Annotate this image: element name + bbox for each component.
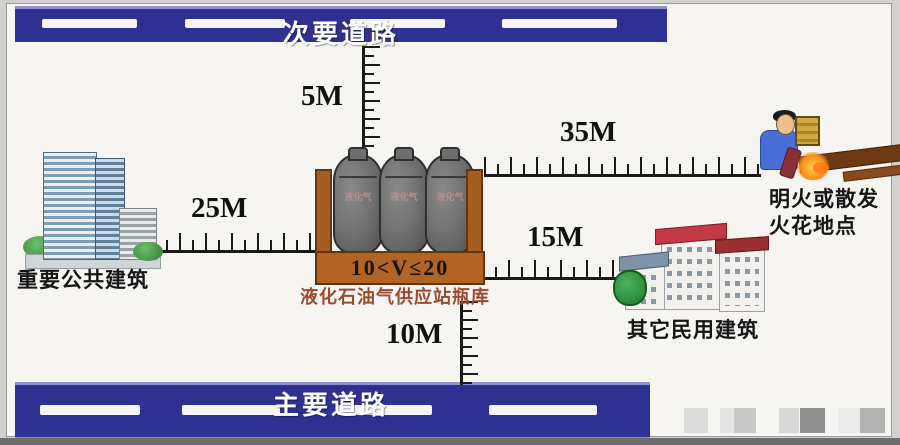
container-left-wall	[315, 169, 332, 257]
ruler-35m	[484, 154, 761, 177]
distance-5m: 5M	[301, 80, 343, 113]
ruler-5m	[362, 46, 383, 152]
volume-range-bar: 10<V≤20	[315, 251, 485, 285]
lane-marking	[489, 405, 597, 415]
flame-point-label-line1: 明火或散发	[769, 186, 879, 213]
ruler-25m	[153, 230, 317, 253]
cylinder-label: 液化气	[335, 190, 381, 203]
watermark-block	[779, 408, 799, 433]
gas-cylinder: 液化气	[333, 154, 383, 255]
diagram-canvas: 次要道路 主要道路 5M 25M 35M 15M 10M 液化气 液化气 液化气	[6, 3, 892, 437]
distance-25m: 25M	[191, 192, 247, 225]
tower-front	[43, 152, 97, 260]
lane-marking	[40, 405, 140, 415]
house	[661, 238, 721, 310]
flame-point-label-line2: 火花地点	[769, 213, 879, 240]
welder-head	[776, 114, 795, 135]
secondary-road: 次要道路	[15, 6, 667, 42]
gas-cylinder: 液化气	[379, 154, 429, 255]
windows	[725, 257, 759, 306]
lane-marking	[185, 19, 285, 28]
civil-buildings-illustration	[619, 224, 774, 314]
watermark-block	[800, 408, 825, 433]
bush	[133, 242, 163, 261]
public-building-illustration	[29, 150, 161, 268]
watermark-block	[720, 408, 734, 433]
lane-marking	[42, 19, 137, 28]
welder-illustration	[747, 110, 900, 194]
watermark-block	[684, 408, 708, 433]
bottom-border	[0, 438, 900, 445]
distance-10m: 10M	[386, 318, 442, 351]
cylinder-label: 液化气	[381, 190, 427, 203]
civil-building-label: 其它民用建筑	[627, 314, 759, 344]
gas-cylinders: 液化气 液化气 液化气	[333, 154, 471, 255]
welding-mask	[795, 116, 820, 146]
public-building-label: 重要公共建筑	[17, 264, 149, 294]
windows	[667, 247, 715, 304]
watermark-block	[734, 408, 756, 433]
watermark-block	[860, 408, 885, 433]
container-right-wall	[466, 169, 483, 257]
watermark-block	[838, 408, 860, 433]
spark-flame	[813, 162, 829, 174]
ruler-15m	[482, 257, 632, 280]
house	[719, 248, 765, 312]
main-road-label: 主要道路	[273, 385, 389, 422]
ruler-10m	[460, 301, 481, 385]
station-caption: 液化石油气供应站瓶库	[285, 283, 505, 309]
tree	[613, 270, 647, 306]
volume-range-label: 10<V≤20	[351, 255, 450, 281]
distance-35m: 35M	[560, 116, 616, 149]
diagram-lpg-station-safety-distances: 次要道路 主要道路 5M 25M 35M 15M 10M 液化气 液化气 液化气	[0, 0, 900, 445]
flame-point-label: 明火或散发 火花地点	[769, 186, 879, 240]
lane-marking	[182, 405, 280, 415]
distance-15m: 15M	[527, 221, 583, 254]
main-road: 主要道路	[15, 382, 650, 439]
lane-marking	[502, 19, 617, 28]
